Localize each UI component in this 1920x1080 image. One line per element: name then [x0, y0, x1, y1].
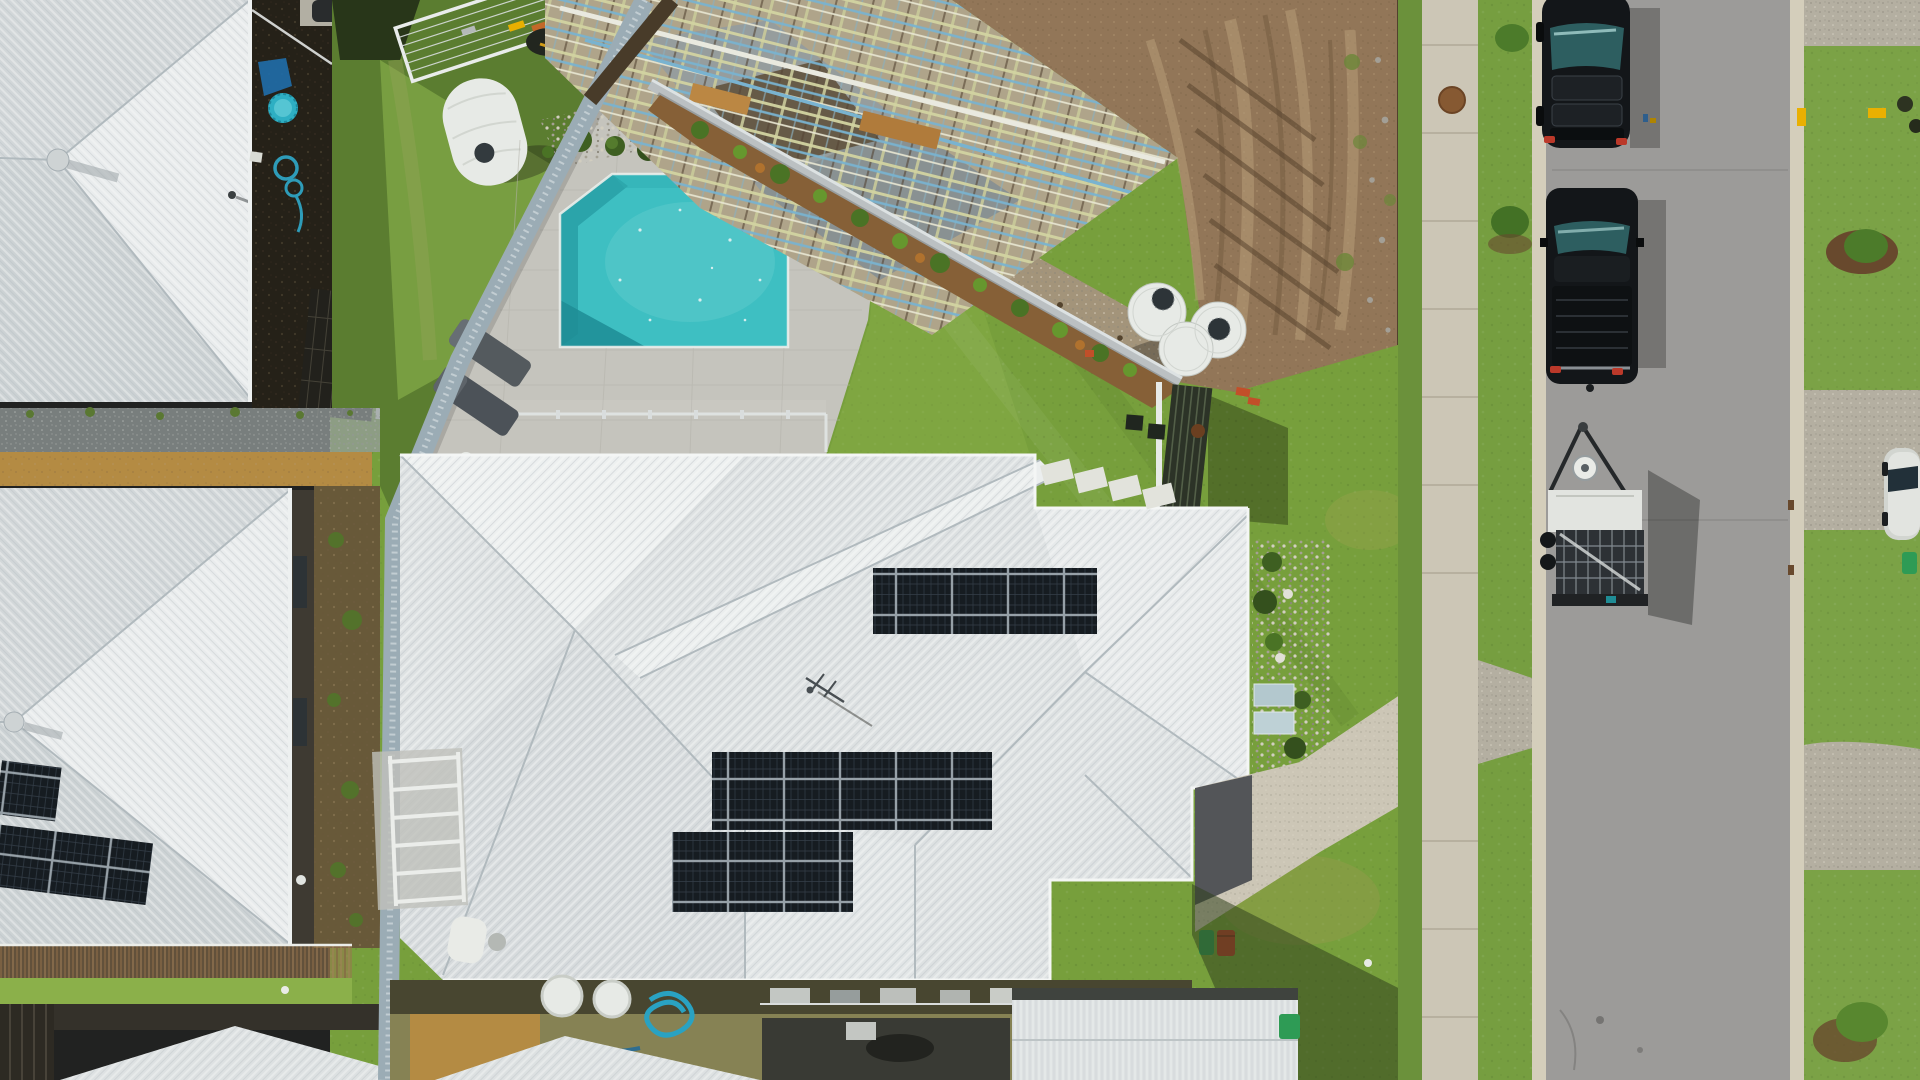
aerial-photo: Top-down aerial view of a suburban stree…: [0, 0, 1920, 1080]
aerial-photo-canvas: Top-down aerial view of a suburban stree…: [0, 0, 1920, 1080]
photo-tint: [0, 0, 1920, 1080]
